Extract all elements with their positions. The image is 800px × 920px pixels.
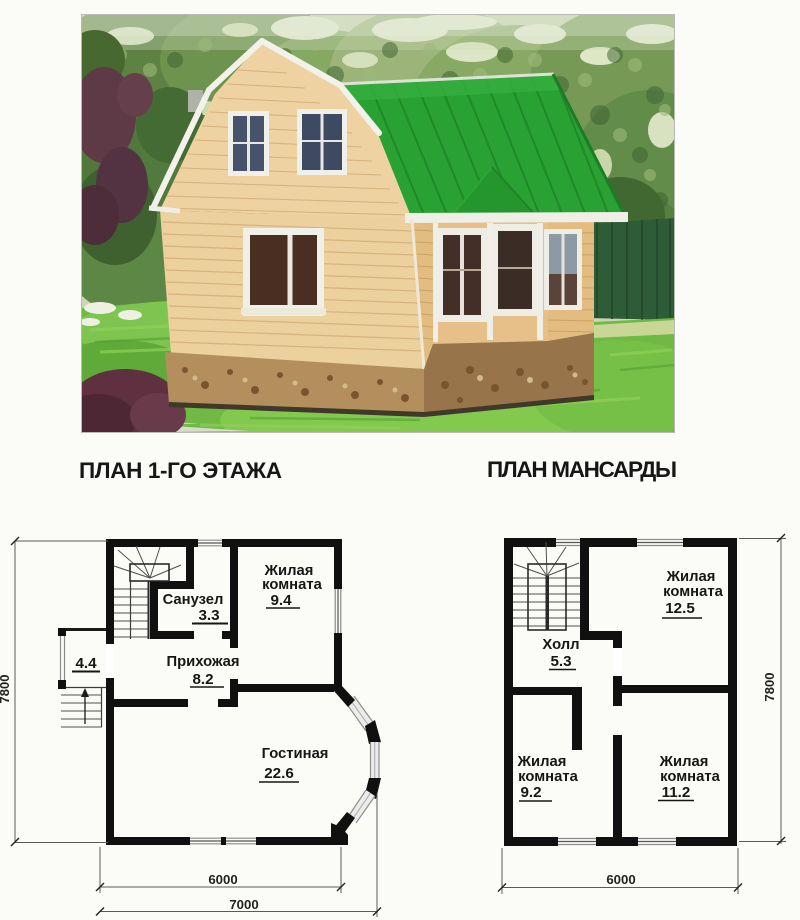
svg-text:7800: 7800 bbox=[0, 675, 12, 704]
svg-text:комната: комната bbox=[518, 769, 578, 785]
svg-text:6000: 6000 bbox=[606, 872, 635, 887]
svg-text:6000: 6000 bbox=[208, 872, 237, 887]
svg-text:Жилая: Жилая bbox=[517, 754, 567, 770]
svg-text:комната: комната bbox=[262, 577, 322, 593]
svg-text:7800: 7800 bbox=[762, 673, 777, 702]
svg-text:Холл: Холл bbox=[542, 637, 579, 653]
svg-text:Санузел: Санузел bbox=[163, 592, 224, 608]
svg-text:Гостиная: Гостиная bbox=[262, 746, 329, 762]
svg-text:9.2: 9.2 bbox=[520, 784, 541, 801]
svg-text:ПЛАН МАНСАРДЫ: ПЛАН МАНСАРДЫ bbox=[487, 457, 677, 482]
svg-text:Жилая: Жилая bbox=[666, 569, 716, 585]
svg-text:11.2: 11.2 bbox=[662, 784, 691, 801]
svg-text:ПЛАН 1-ГО ЭТАЖА: ПЛАН 1-ГО ЭТАЖА bbox=[79, 458, 282, 483]
svg-text:3.3: 3.3 bbox=[198, 607, 219, 624]
svg-text:9.4: 9.4 bbox=[270, 592, 292, 609]
svg-text:комната: комната bbox=[660, 769, 720, 785]
svg-text:4.4: 4.4 bbox=[75, 655, 97, 672]
svg-text:12.5: 12.5 bbox=[665, 600, 695, 617]
svg-text:Прихожая: Прихожая bbox=[166, 654, 239, 670]
svg-text:22.6: 22.6 bbox=[264, 765, 294, 782]
svg-text:5.3: 5.3 bbox=[550, 653, 571, 670]
svg-text:Жилая: Жилая bbox=[659, 754, 709, 770]
svg-text:комната: комната bbox=[663, 584, 723, 600]
svg-text:7000: 7000 bbox=[229, 897, 258, 912]
svg-text:8.2: 8.2 bbox=[192, 671, 213, 688]
